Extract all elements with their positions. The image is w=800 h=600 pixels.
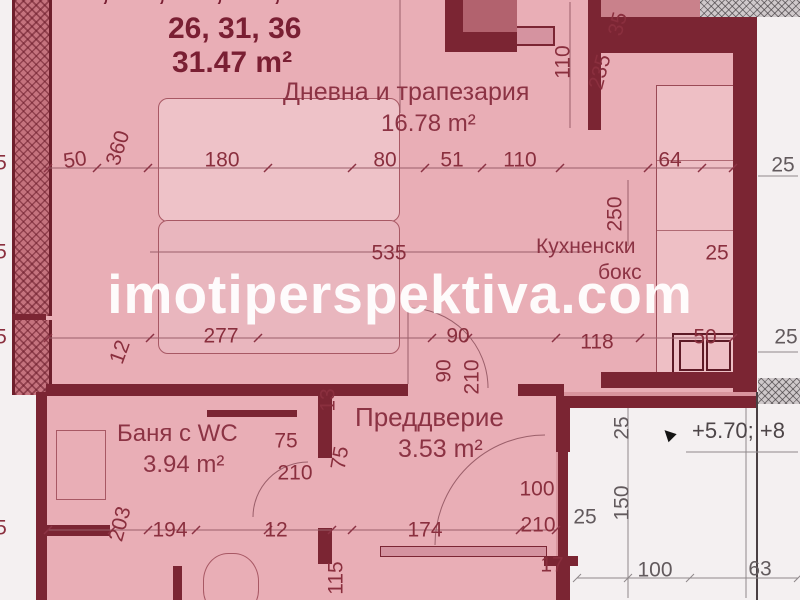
dim-label: 12: [264, 520, 287, 541]
dim-label: 35: [605, 10, 631, 38]
dim-label: 80: [373, 150, 396, 171]
watermark: imotiperspektiva.com: [0, 262, 800, 326]
dim-label: 150: [612, 485, 633, 520]
dim-label: 100: [519, 479, 554, 500]
dim-label: 90: [446, 326, 469, 347]
dim-label: 250: [605, 196, 626, 231]
bath-area-label: 3.94 m²: [143, 453, 224, 477]
dim-label: 5: [0, 242, 7, 263]
dim-label: 25: [774, 327, 797, 348]
bath-label: Баня с WC: [117, 422, 238, 446]
living-room-label: Дневна и трапезария: [283, 80, 529, 105]
dim-label: 25: [771, 155, 794, 176]
dim-label: 180: [204, 150, 239, 171]
total-area: 31.47 m²: [172, 48, 292, 78]
dim-label: 5: [0, 518, 7, 539]
dim-label: 75: [274, 431, 297, 452]
dim-label: 110: [503, 150, 536, 171]
dim-label: 115: [326, 561, 347, 594]
dim-label: 210: [462, 359, 483, 394]
dim-label: 100: [637, 560, 672, 581]
dim-label: 64: [658, 150, 681, 171]
dim-label: 50: [693, 327, 716, 348]
unit-numbers: 26, 31, 36: [168, 14, 301, 44]
hall-label: Преддверие: [355, 404, 504, 430]
living-room-area-label: 16.78 m²: [381, 112, 476, 136]
dim-label: 51: [440, 150, 463, 171]
dim-label: 25: [705, 243, 728, 264]
dim-label: 110: [553, 45, 574, 78]
dim-label: 535: [371, 243, 406, 264]
clipped-title-line: 6, 11, 16, 21,: [84, 0, 285, 5]
dim-label: 63: [748, 559, 771, 580]
dim-label: 50: [62, 148, 88, 172]
dim-label: 75: [328, 445, 353, 472]
dim-label: 277: [203, 326, 238, 347]
dim-label: 90: [434, 359, 455, 382]
dim-label: 17: [540, 555, 563, 576]
level-label: +5.70; +8: [692, 420, 785, 442]
kitchen-label-line1: Кухненски: [536, 236, 636, 257]
floor-plan: 6, 11, 16, 21, 26, 31, 36 31.47 m² Дневн…: [0, 0, 800, 600]
dim-label: 5: [0, 327, 7, 348]
dim-label: 118: [580, 332, 613, 353]
dim-label: 174: [407, 520, 442, 541]
dim-label: 13: [318, 388, 339, 411]
dim-label: 194: [152, 520, 187, 541]
dim-label: 210: [520, 515, 555, 536]
dim-label: 210: [277, 463, 312, 484]
dim-label: 25: [612, 416, 633, 439]
dim-label: 5: [0, 153, 7, 174]
dim-label: 25: [573, 507, 596, 528]
hall-area-label: 3.53 m²: [398, 437, 483, 462]
